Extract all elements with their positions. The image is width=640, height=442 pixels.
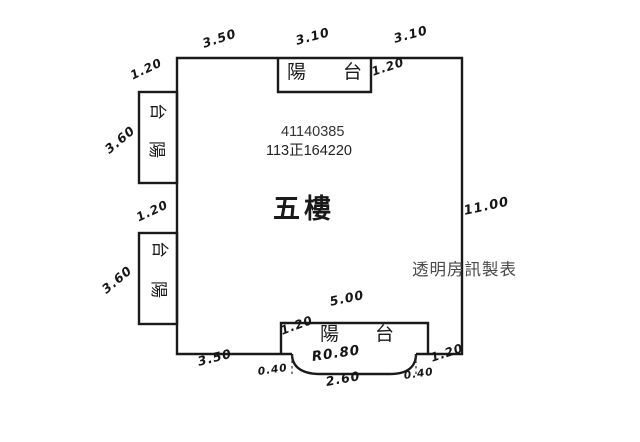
bottom-balcony-label: 陽 台 bbox=[320, 325, 394, 344]
unit-serial-number: 41140385 bbox=[281, 125, 344, 140]
top-balcony-label: 陽 台 bbox=[287, 63, 362, 82]
watermark-text: 透明房訊製表 bbox=[412, 262, 517, 279]
left-lower-balcony-char-bottom: 陽 bbox=[149, 281, 166, 298]
top-balcony-char1: 陽 bbox=[287, 63, 306, 82]
bottom-balcony-char2: 台 bbox=[375, 325, 394, 344]
floor-title: 五樓 bbox=[273, 196, 335, 223]
floor-plan-canvas: 3.50 3.10 3.10 1.20 陽 台 1.20 台 陽 3.60 1.… bbox=[0, 0, 640, 442]
left-lower-balcony-char-top: 台 bbox=[150, 241, 167, 258]
left-upper-balcony-char-bottom: 陽 bbox=[147, 141, 164, 158]
bottom-balcony-char1: 陽 bbox=[320, 325, 339, 344]
top-balcony-char2: 台 bbox=[343, 63, 362, 82]
unit-case-number: 113正164220 bbox=[266, 144, 352, 159]
left-upper-balcony-char-top: 台 bbox=[148, 103, 165, 120]
